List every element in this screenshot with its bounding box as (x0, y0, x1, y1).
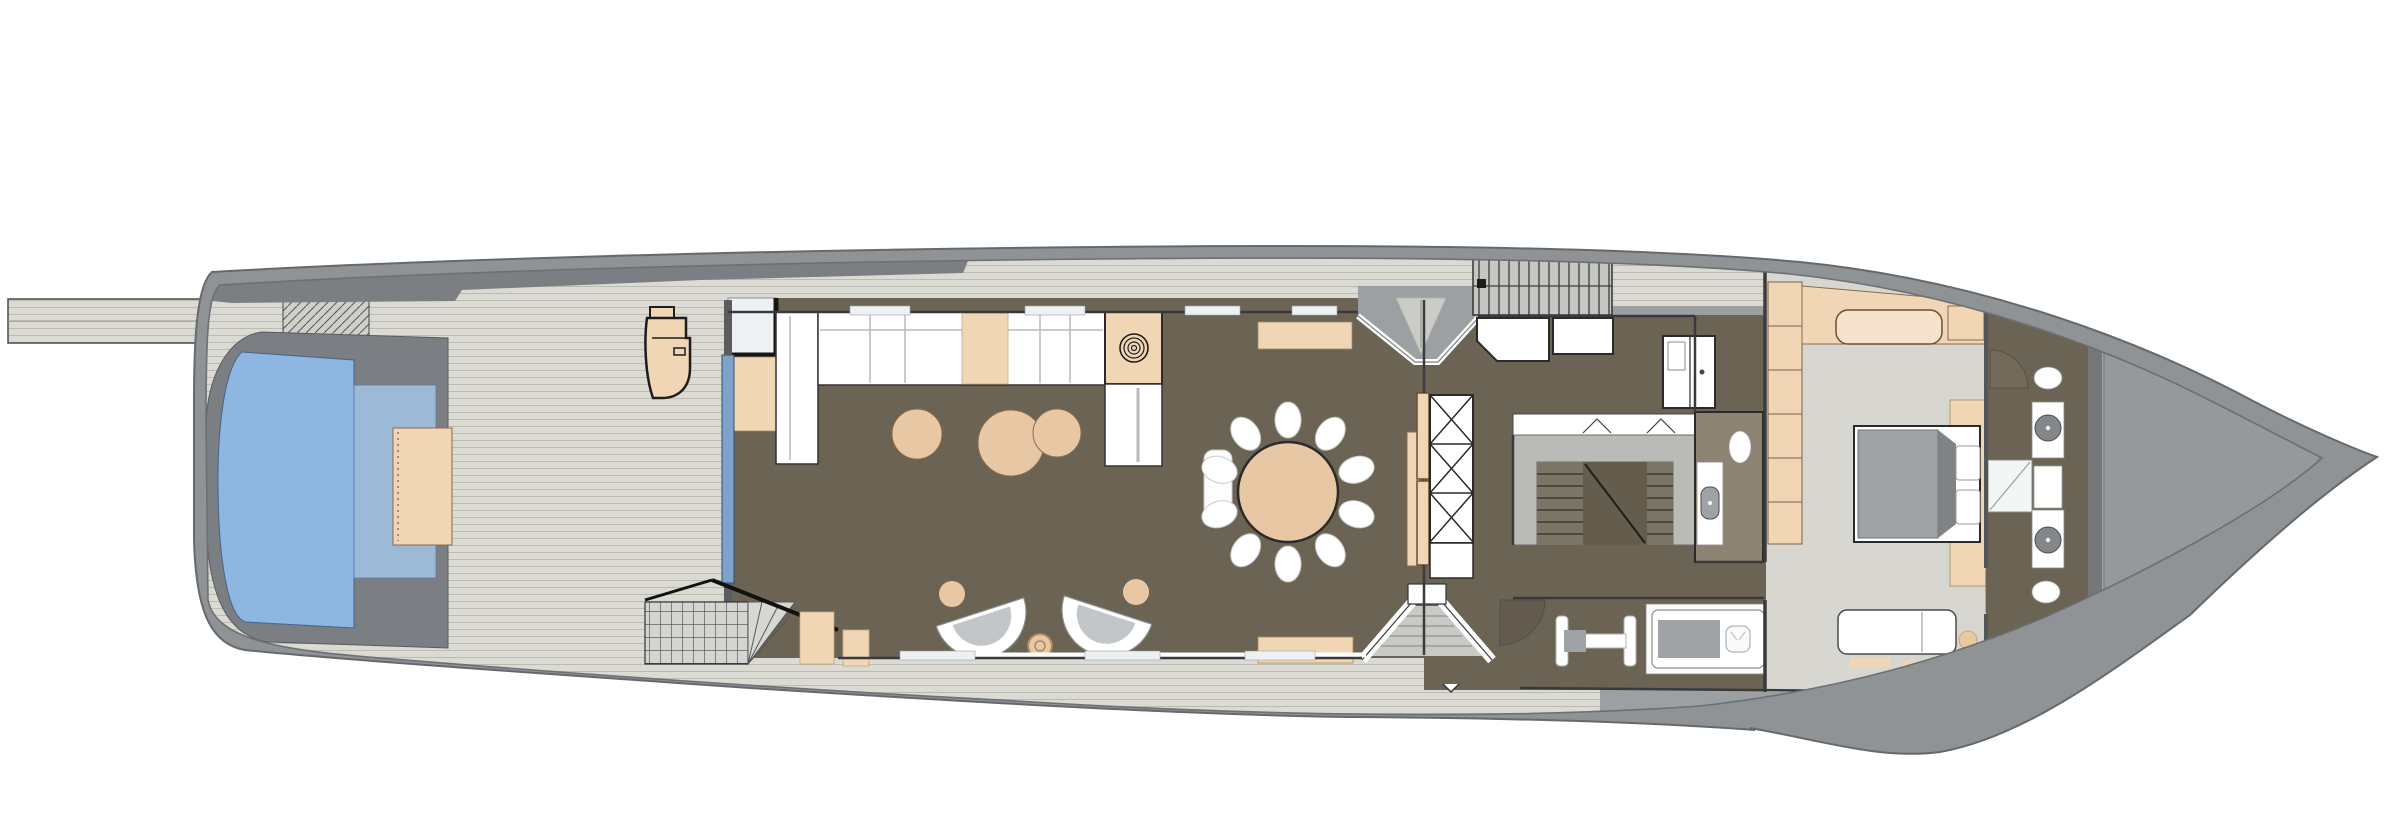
sofa-side-table (962, 313, 1008, 384)
yacht-deck-plan-canvas (0, 0, 2400, 835)
passerelle (8, 299, 220, 343)
dumbwaiter-unit (1663, 336, 1715, 408)
basin-hers-drain (2046, 538, 2050, 542)
stair-grid (645, 602, 748, 664)
master-sofa (1836, 310, 1942, 344)
salon-tall-cabinet (776, 312, 818, 464)
boarding-stairs (1473, 256, 1612, 315)
bed-headboard (1938, 430, 1956, 538)
basin-his-drain (2046, 426, 2050, 430)
armchair-left-pillow (939, 581, 965, 607)
coffee-table-large (978, 410, 1044, 476)
master-wardrobe-aft (1768, 282, 1802, 544)
stair-mat-large (800, 612, 834, 664)
armchair-right-pillow (1123, 579, 1149, 605)
sliding-door-panel-b (1417, 481, 1429, 565)
bath-bench (2034, 466, 2062, 508)
bed-pillow-bottom (1956, 490, 1980, 524)
wine-cabinet (1430, 395, 1473, 578)
massage-table-runner (1658, 620, 1720, 658)
main-staircase (1513, 435, 1697, 545)
baseboard-a (1850, 658, 1890, 668)
foyer-closets (1513, 414, 1695, 435)
massage-headrest (1726, 626, 1750, 652)
salon-corner-unit (1105, 312, 1162, 384)
toilet-hers (2032, 581, 2060, 603)
bar-top-box (650, 307, 674, 318)
salon-corner-floor (728, 298, 776, 354)
day-head-drain (1708, 501, 1712, 505)
deck-plan-drawing (0, 0, 2400, 835)
stair-mat-small (843, 630, 869, 666)
boarding-stair-post (1477, 279, 1486, 288)
master-bed (1854, 426, 1980, 542)
pool (218, 352, 354, 628)
dining-chair (1275, 546, 1301, 582)
aft-glass-door (722, 355, 734, 583)
chevron-post (1408, 584, 1446, 604)
dining-sideboard-top (1258, 322, 1352, 349)
aft-deck-bar (645, 307, 690, 398)
salon-chaise (1105, 384, 1162, 466)
bed-pillow-top (1956, 446, 1980, 480)
salon-cabinet-aft (728, 357, 776, 431)
aft-wall-post-top (724, 300, 732, 355)
toilet-his (2034, 367, 2062, 389)
pool-area (206, 332, 452, 648)
sun-pad (393, 428, 452, 545)
day-head (1695, 412, 1763, 562)
dining-table (1238, 442, 1338, 542)
coffee-table-small (892, 409, 942, 459)
master-chaise (1838, 610, 1956, 654)
coffee-table-mid (1033, 409, 1081, 457)
salon-sofa (818, 312, 1105, 385)
day-head-toilet (1729, 431, 1751, 463)
dining-chair (1275, 402, 1301, 438)
bar-counter (645, 318, 690, 398)
sliding-door-panel-a (1417, 393, 1429, 479)
pantry-counter-right (1553, 318, 1613, 354)
